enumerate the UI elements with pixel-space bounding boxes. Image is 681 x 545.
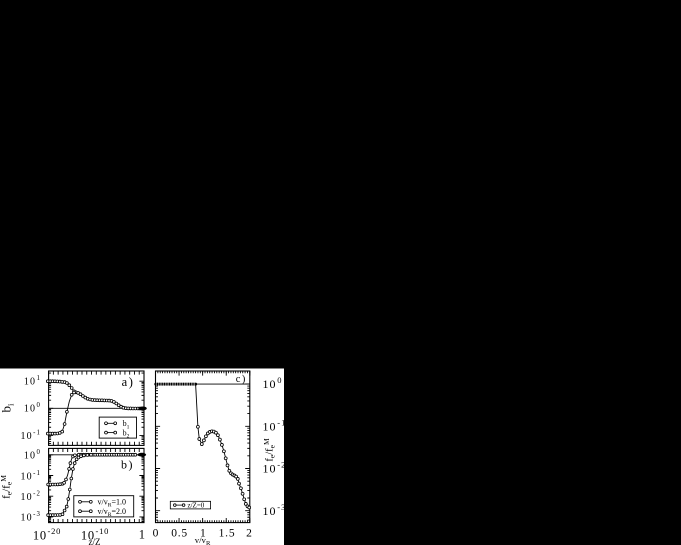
svg-text:b): b) (121, 457, 134, 471)
svg-text:1: 1 (139, 528, 146, 542)
svg-text:0.5: 0.5 (171, 528, 188, 540)
svg-text:2: 2 (246, 528, 253, 540)
svg-text:a): a) (122, 375, 135, 389)
svg-text:z/Z: z/Z (89, 537, 101, 545)
svg-text:1.5: 1.5 (219, 528, 236, 540)
svg-text:z/Z=0: z/Z=0 (188, 501, 205, 509)
svg-text:c): c) (236, 374, 247, 385)
svg-text:0: 0 (153, 528, 160, 540)
